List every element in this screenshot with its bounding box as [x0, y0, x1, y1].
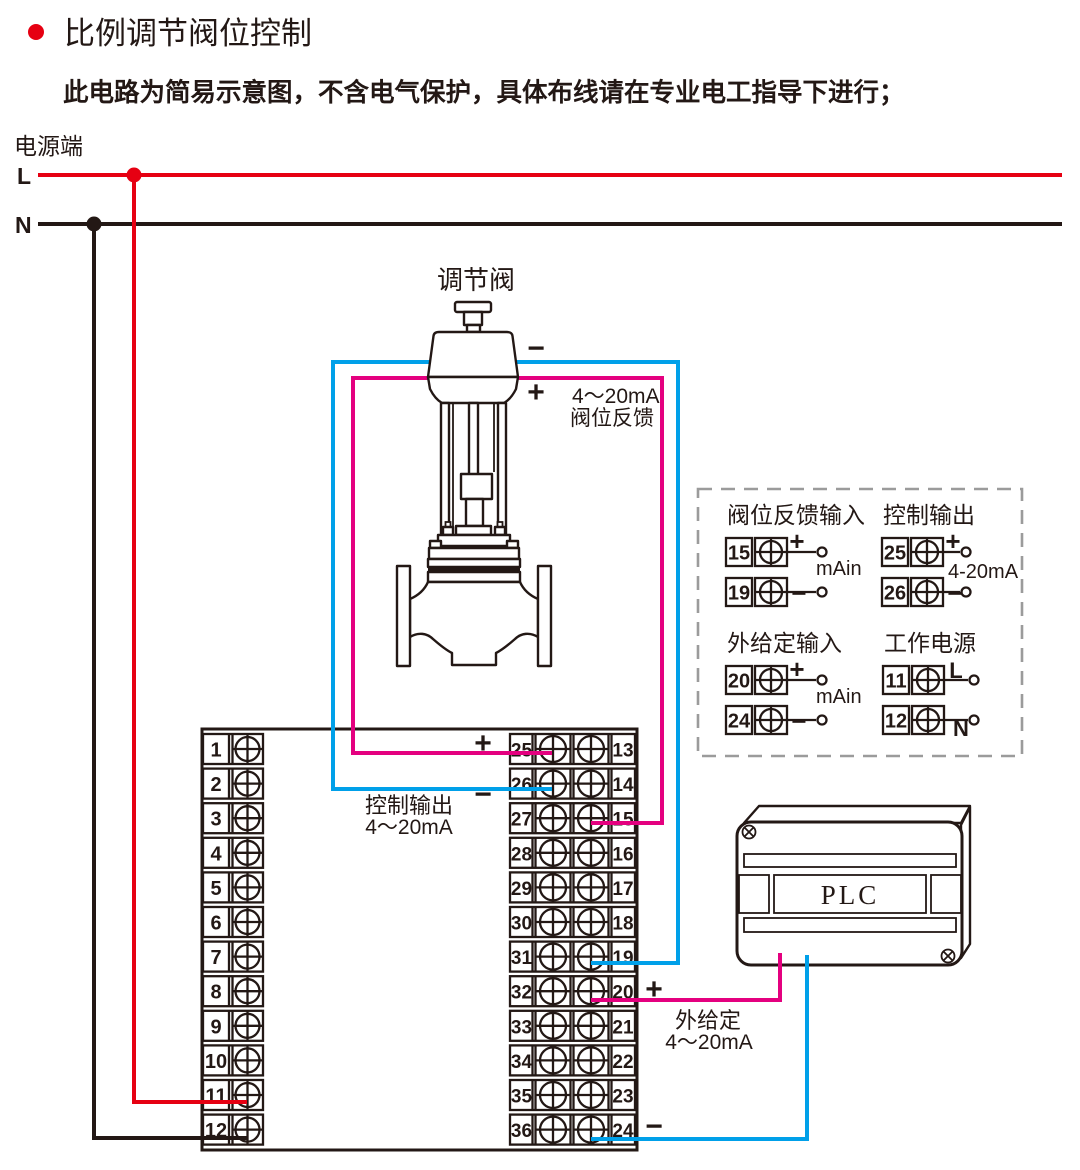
terminal-number: 6: [210, 913, 221, 935]
terminal-number: 35: [511, 1087, 533, 1108]
terminal-number: 18: [612, 914, 633, 935]
terminal-number: 30: [511, 914, 532, 935]
open-terminal-icon: [818, 676, 827, 685]
terminal-row: 9: [203, 1011, 263, 1041]
terminal-row: 7: [203, 942, 263, 972]
terminal-row: 2715: [510, 803, 635, 833]
legend-polarity-sign: N: [953, 716, 969, 741]
valve-body: [410, 582, 538, 665]
open-terminal-icon: [970, 716, 979, 725]
terminal-number: 28: [511, 844, 532, 865]
valve-plus-sign: +: [527, 376, 545, 409]
terminal-row: 3422: [510, 1045, 635, 1075]
terminal-number: 16: [612, 844, 633, 865]
power-terminal-label: 电源端: [14, 133, 83, 159]
terminal-row: 2917: [510, 872, 635, 902]
feedback-note-range: 4～20mA: [572, 385, 660, 408]
legend-row: 11L: [883, 658, 979, 694]
control-output-label: 控制输出: [365, 793, 453, 818]
terminal-row: 3321: [510, 1011, 635, 1041]
terminal-row: 2: [203, 769, 263, 799]
legend-terminal-number: 20: [728, 671, 750, 693]
legend-row: 20+: [726, 654, 827, 694]
legend-polarity-sign: +: [789, 526, 804, 556]
terminal-row: 2614: [510, 769, 635, 799]
terminal-row: 8: [203, 976, 263, 1006]
setpoint-range: 4～20mA: [665, 1031, 753, 1054]
plc-top-slot: [744, 854, 956, 867]
terminal-number: 14: [612, 775, 634, 796]
line-n-label: N: [15, 212, 32, 238]
terminal-row: 3018: [510, 907, 635, 937]
plc-bottom-slot: [744, 918, 956, 932]
plc-right-block: [931, 875, 961, 913]
terminal-row: 4: [203, 838, 263, 868]
legend-polarity-sign: L: [949, 658, 962, 683]
legend-terminal-number: 19: [728, 583, 750, 605]
legend-group-title: 控制输出: [883, 502, 975, 528]
terminal-number: 33: [511, 1017, 532, 1038]
legend-group-title: 工作电源: [884, 630, 976, 656]
plc-label: PLC: [821, 880, 880, 910]
junction-dot-l: [127, 168, 142, 183]
terminal-number: 29: [511, 879, 532, 900]
legend-group-title: 阀位反馈输入: [727, 502, 865, 528]
legend-terminal-number: 26: [884, 583, 906, 605]
terminal-number: 13: [612, 741, 633, 762]
terminal-row: 2816: [510, 838, 635, 868]
page-title: 比例调节阀位控制: [64, 16, 312, 51]
terminal-row: 5: [203, 872, 263, 902]
junction-dot-n: [87, 217, 102, 232]
control-output-plus-sign: +: [474, 727, 492, 760]
terminal-number: 36: [511, 1121, 532, 1142]
terminal-row: 11: [203, 1080, 263, 1110]
terminal-number: 1: [210, 740, 221, 762]
legend-signal-note: mAin: [816, 558, 862, 580]
legend-polarity-sign: +: [789, 654, 804, 684]
valve-actuator-base: [428, 377, 518, 403]
legend-signal-note: 4-20mA: [948, 561, 1019, 583]
legend-row: 24−: [726, 706, 827, 736]
control-output-minus-sign: −: [474, 778, 492, 811]
legend-terminal-number: 24: [728, 711, 751, 733]
legend-row: 25+: [882, 526, 971, 566]
wiring-diagram: 比例调节阀位控制 此电路为简易示意图，不含电气保护，具体布线请在专业电工指导下进…: [0, 0, 1080, 1170]
terminal-number: 17: [612, 879, 633, 900]
setpoint-label: 外给定: [675, 1008, 741, 1033]
open-terminal-icon: [970, 676, 979, 685]
valve-actuator: [428, 332, 518, 377]
valve-minus-sign: −: [527, 332, 545, 365]
setpoint-minus-sign: −: [645, 1110, 663, 1143]
terminal-number: 21: [612, 1017, 634, 1038]
legend-row: 15+: [726, 526, 827, 566]
legend-group-title: 外给定输入: [727, 630, 842, 656]
valve-knob: [455, 302, 491, 312]
legend-group: 工作电源11L12N: [883, 630, 979, 741]
legend-group: 阀位反馈输入15+19−mAin: [726, 502, 865, 608]
legend-content: 阀位反馈输入15+19−mAin控制输出25+26−4-20mA外给定输入20+…: [726, 502, 1019, 741]
terminal-row: 2513: [510, 734, 635, 764]
plc-corner-screw-icon: [942, 950, 955, 963]
plc-corner-screw-icon: [743, 826, 756, 839]
terminal-number: 15: [612, 810, 634, 831]
open-terminal-icon: [818, 716, 827, 725]
legend-signal-note: mAin: [816, 686, 862, 708]
terminal-row: 3: [203, 803, 263, 833]
open-terminal-icon: [962, 588, 971, 597]
terminal-row: 1: [203, 734, 263, 764]
valve-label: 调节阀: [437, 265, 515, 295]
terminal-number: 27: [511, 810, 532, 831]
terminal-row: 3119: [510, 942, 635, 972]
legend-polarity-sign: −: [791, 578, 806, 608]
valve-pipe-flange: [397, 566, 410, 666]
line-l-label: L: [17, 163, 31, 189]
legend-group: 外给定输入20+24−mAin: [726, 630, 862, 736]
valve-pipe-flange: [538, 566, 551, 666]
legend-terminal-number: 15: [728, 543, 750, 565]
terminal-row: 3523: [510, 1080, 635, 1110]
legend-row: 19−: [726, 578, 827, 608]
legend-polarity-sign: +: [945, 526, 960, 556]
header: 比例调节阀位控制 此电路为简易示意图，不含电气保护，具体布线请在专业电工指导下进…: [28, 16, 905, 107]
valve-stem: [469, 403, 478, 475]
terminal-number: 34: [511, 1052, 533, 1073]
terminal-number: 3: [210, 809, 221, 831]
terminal-number: 19: [612, 948, 633, 969]
terminal-number: 5: [210, 878, 221, 900]
terminal-number: 11: [205, 1086, 226, 1108]
plc-module: PLC: [737, 806, 970, 965]
feedback-note-label: 阀位反馈: [570, 407, 654, 430]
terminal-number: 26: [511, 775, 532, 796]
page-subtitle: 此电路为简易示意图，不含电气保护，具体布线请在专业电工指导下进行；: [63, 78, 905, 107]
terminal-number: 9: [210, 1016, 221, 1038]
legend-group: 控制输出25+26−4-20mA: [882, 502, 1019, 608]
plc-top-face: [744, 806, 970, 823]
terminal-number: 8: [210, 982, 221, 1004]
bullet-icon: [28, 24, 44, 40]
control-output-range: 4～20mA: [365, 816, 453, 839]
open-terminal-icon: [962, 548, 971, 557]
open-terminal-icon: [818, 588, 827, 597]
legend-polarity-sign: −: [791, 706, 806, 736]
legend-terminal-number: 25: [884, 543, 906, 565]
plc-left-block: [739, 875, 769, 913]
terminal-number: 7: [210, 947, 221, 969]
terminal-number: 4: [210, 843, 222, 865]
open-terminal-icon: [818, 548, 827, 557]
terminal-number: 2: [210, 774, 221, 796]
terminal-number: 10: [205, 1051, 227, 1073]
valve-yoke: [441, 403, 449, 535]
terminal-number: 22: [612, 1052, 633, 1073]
terminal-row: 12: [203, 1115, 263, 1145]
setpoint-plus-sign: +: [645, 973, 663, 1006]
wiring-diagram-page: 比例调节阀位控制 此电路为简易示意图，不含电气保护，具体布线请在专业电工指导下进…: [0, 0, 1080, 1170]
legend-terminal-number: 12: [885, 711, 907, 733]
terminal-row: 10: [203, 1045, 263, 1075]
terminal-number: 23: [612, 1087, 633, 1108]
terminal-number: 31: [511, 948, 533, 969]
legend-terminal-number: 11: [885, 671, 906, 693]
terminal-number: 32: [511, 983, 532, 1004]
legend-box: 阀位反馈输入15+19−mAin控制输出25+26−4-20mA外给定输入20+…: [698, 489, 1022, 756]
legend-row: 12N: [883, 706, 979, 741]
valve-stem-block: [461, 474, 492, 499]
terminal-row: 6: [203, 907, 263, 937]
valve-bonnet: [438, 535, 510, 546]
